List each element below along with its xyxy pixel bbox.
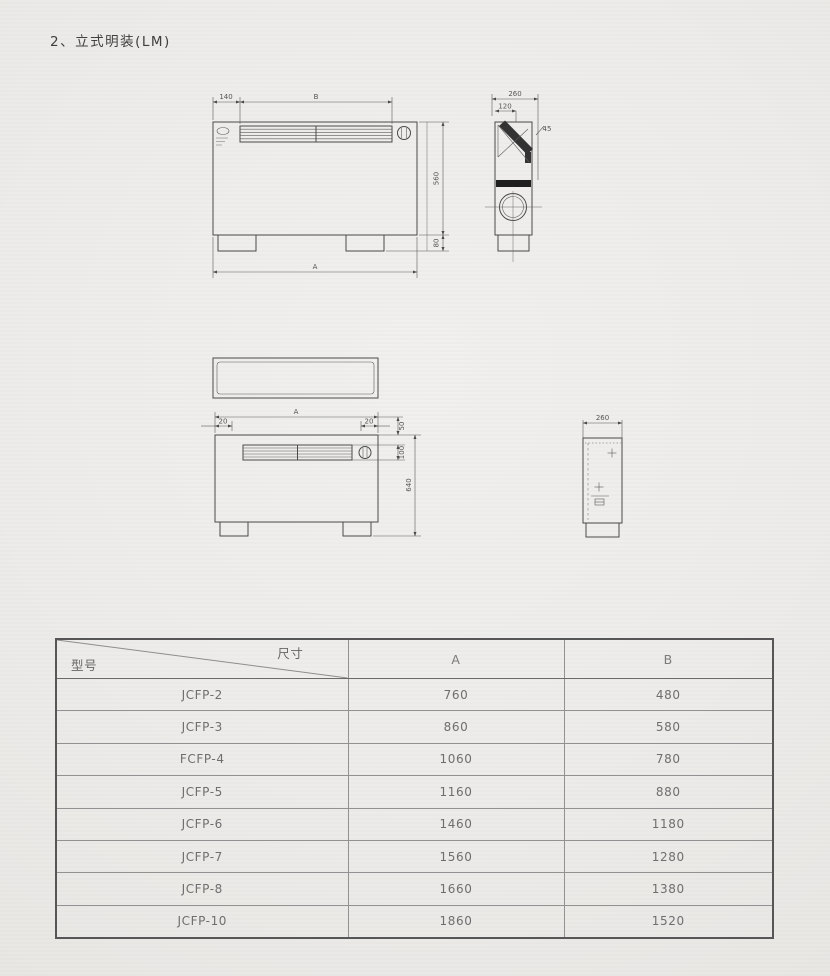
dim-label-50: 50 (398, 422, 406, 431)
dim-label-20-left: 20 (219, 418, 228, 426)
dim-label-140: 140 (219, 93, 232, 101)
header-col-a: A (348, 639, 564, 679)
table-row: JCFP-10 1860 1520 (56, 905, 773, 937)
dim-a-cell: 1160 (348, 776, 564, 808)
dim-label-100: 100 (398, 446, 406, 459)
header-corner-cell: 型号 尺寸 (56, 639, 348, 679)
dim-label-20-right: 20 (365, 418, 374, 426)
model-cell: JCFP-10 (56, 905, 348, 937)
dimension-table: 型号 尺寸 A B JCFP-2 760 480 JCFP-3 860 580 (55, 638, 774, 939)
dim-b-cell: 780 (564, 743, 773, 775)
drawing-plan-front-side-view: A 20 20 50 100 640 (185, 350, 645, 555)
table-header-row: 型号 尺寸 A B (56, 639, 773, 679)
dim-a-cell: 1460 (348, 808, 564, 840)
dim-label-45: 45 (543, 125, 552, 133)
dim-label-560: 560 (433, 172, 441, 185)
table-row: JCFP-6 1460 1180 (56, 808, 773, 840)
model-cell: FCFP-4 (56, 743, 348, 775)
table-row: JCFP-8 1660 1380 (56, 873, 773, 905)
damper-block (525, 152, 531, 163)
air-grille-2 (243, 445, 352, 460)
dim-b-cell: 580 (564, 711, 773, 743)
header-col-b: B (564, 639, 773, 679)
dim-label-260-2: 260 (596, 414, 609, 422)
dim-b-cell: 1280 (564, 840, 773, 872)
dim-b-cell: 880 (564, 776, 773, 808)
dim-label-120: 120 (498, 103, 511, 111)
front-view-1: 140 B 560 80 A (213, 93, 449, 278)
model-cell: JCFP-7 (56, 840, 348, 872)
side-view-1: 260 120 45 (485, 90, 551, 262)
dim-label-B: B (314, 93, 319, 101)
catalog-page: 2、立式明装(LM) (0, 0, 830, 976)
coil-band (499, 121, 533, 155)
pipe-connection-marks (591, 449, 617, 506)
dimension-table-wrap: 型号 尺寸 A B JCFP-2 760 480 JCFP-3 860 580 (55, 638, 772, 935)
plan-view (213, 358, 378, 398)
side-view-2-dimensions: 260 (583, 414, 622, 438)
header-size-label: 尺寸 (277, 643, 303, 662)
model-cell: JCFP-8 (56, 873, 348, 905)
drawing-front-and-side-view: 140 B 560 80 A (185, 80, 585, 295)
front-view-2: A 20 20 50 100 640 (201, 408, 421, 536)
thermostat-knob-2 (359, 447, 371, 459)
fan-deck (496, 180, 531, 187)
model-cell: JCFP-6 (56, 808, 348, 840)
model-cell: JCFP-3 (56, 711, 348, 743)
dim-a-cell: 1860 (348, 905, 564, 937)
dim-a-cell: 1660 (348, 873, 564, 905)
table-row: JCFP-7 1560 1280 (56, 840, 773, 872)
dim-label-640: 640 (405, 478, 413, 491)
table-row: FCFP-4 1060 780 (56, 743, 773, 775)
dim-b-cell: 1380 (564, 873, 773, 905)
dim-b-cell: 480 (564, 679, 773, 711)
dim-a-cell: 860 (348, 711, 564, 743)
dim-a-cell: 1060 (348, 743, 564, 775)
dim-label-80: 80 (433, 239, 441, 248)
dim-a-cell: 1560 (348, 840, 564, 872)
front-view-2-dimensions: A 20 20 50 100 640 (201, 408, 421, 536)
header-model-label: 型号 (71, 655, 97, 674)
table-row: JCFP-2 760 480 (56, 679, 773, 711)
table-row: JCFP-5 1160 880 (56, 776, 773, 808)
air-grille (240, 126, 392, 142)
model-cell: JCFP-5 (56, 776, 348, 808)
thermostat-knob (398, 127, 411, 140)
control-panel (216, 128, 229, 146)
model-cell: JCFP-2 (56, 679, 348, 711)
front-view-1-dimensions: 140 B 560 80 A (213, 93, 449, 278)
table-row: JCFP-3 860 580 (56, 711, 773, 743)
dim-b-cell: 1180 (564, 808, 773, 840)
dim-label-A: A (313, 263, 318, 271)
diagonal-divider (57, 640, 348, 678)
side-view-2: 260 (583, 414, 622, 537)
dim-label-260: 260 (508, 90, 521, 98)
page-title: 2、立式明装(LM) (50, 30, 171, 50)
dim-a-cell: 760 (348, 679, 564, 711)
dim-label-A2: A (294, 408, 299, 416)
dim-b-cell: 1520 (564, 905, 773, 937)
